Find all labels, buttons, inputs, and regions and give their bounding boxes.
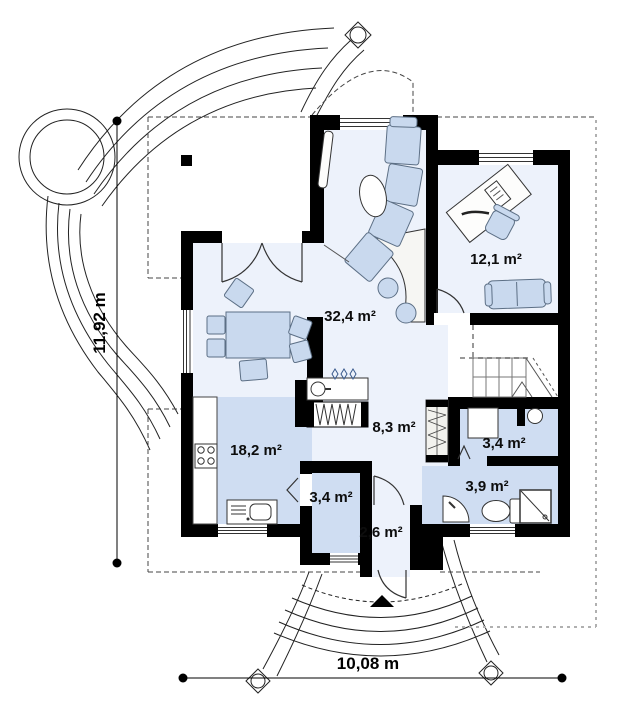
pouf [396,303,416,323]
pergola-arc [78,28,334,170]
downspout-pipe-top [301,40,351,112]
washing-machine [468,408,498,438]
wall [181,231,193,537]
window-dining-left [181,310,193,373]
dimension-width-label: 10,08 m [337,654,399,673]
downspout-diamond-top [345,22,371,48]
dimension-dot [113,117,122,126]
dimension-dot [179,674,188,683]
wall [295,380,307,427]
dimension-dot [113,559,122,568]
wall [426,115,438,325]
room-fill-stairwell [460,325,558,397]
room-label-office: 12,1 m² [470,251,522,268]
room-label-living: 32,4 m² [324,308,376,325]
downspout-end-top [350,27,366,43]
hall-wardrobe [426,400,448,462]
washbasin-round [311,382,325,396]
pillar-diamond-right [479,661,503,685]
entrance-pillar-right [441,540,487,662]
entrance-pillar-left [277,574,322,676]
window-office [479,150,533,165]
entrance-step-arc [279,620,484,645]
downspout-pipe-top [315,50,364,119]
dining-chair [289,340,312,363]
pergola-arc [94,68,322,194]
room-label-utility: 3,4 m² [482,435,525,452]
dining-chair [207,316,225,334]
entrance-pillar-left [263,572,309,669]
wall [487,456,558,466]
dimension-dot [558,674,567,683]
wall [558,150,570,537]
curved-path-line [68,209,170,427]
window-bathroom [470,524,515,537]
entrance-step-arc [285,608,478,632]
room-label-vestibule: 2,6 m² [359,524,402,541]
dining-chair [207,339,225,357]
room-label-kitchen: 18,2 m² [230,442,282,459]
wall [448,397,460,466]
entrance-pillar-right [454,540,499,655]
dining-table [226,312,290,358]
dining-chair [239,359,268,381]
shower [520,490,551,523]
pillar-diamond-left [246,669,270,693]
floor-plan-page: 32,4 m² 12,1 m² 18,2 m² 8,3 m² 3,4 m² 3,… [0,0,640,727]
entrance-arrow-icon [370,595,394,607]
room-label-hall: 8,3 m² [372,419,415,436]
wall [448,397,570,409]
kitchen-sink-unit [227,500,277,524]
stove [195,444,217,468]
wall [360,461,372,577]
wall [300,461,312,474]
dimension-height-label: 11,92 m [90,292,109,353]
overhang-eyebrow-arc [312,71,413,117]
office-sofa [485,279,552,309]
floor-plan-svg: 32,4 m² 12,1 m² 18,2 m² 8,3 m² 3,4 m² 3,… [0,0,640,727]
round-terrace-inner [30,120,104,194]
toilet [482,499,523,523]
radiator-hatched [307,402,368,427]
pouf [378,278,398,298]
window-kitchen [218,524,267,537]
window-pantry [330,553,358,565]
pergola-arc [102,88,316,206]
room-label-bathroom: 3,9 m² [465,478,508,495]
pillar-end-left [251,674,265,688]
room-label-pantry: 3,4 m² [309,489,352,506]
room-fill-utility-doorgap [460,456,487,466]
round-terrace-outer [19,109,115,205]
chimney-marker [181,155,192,166]
entrance-step-arc [274,631,490,656]
wall [410,537,443,570]
room-fill-pantry [312,473,360,553]
